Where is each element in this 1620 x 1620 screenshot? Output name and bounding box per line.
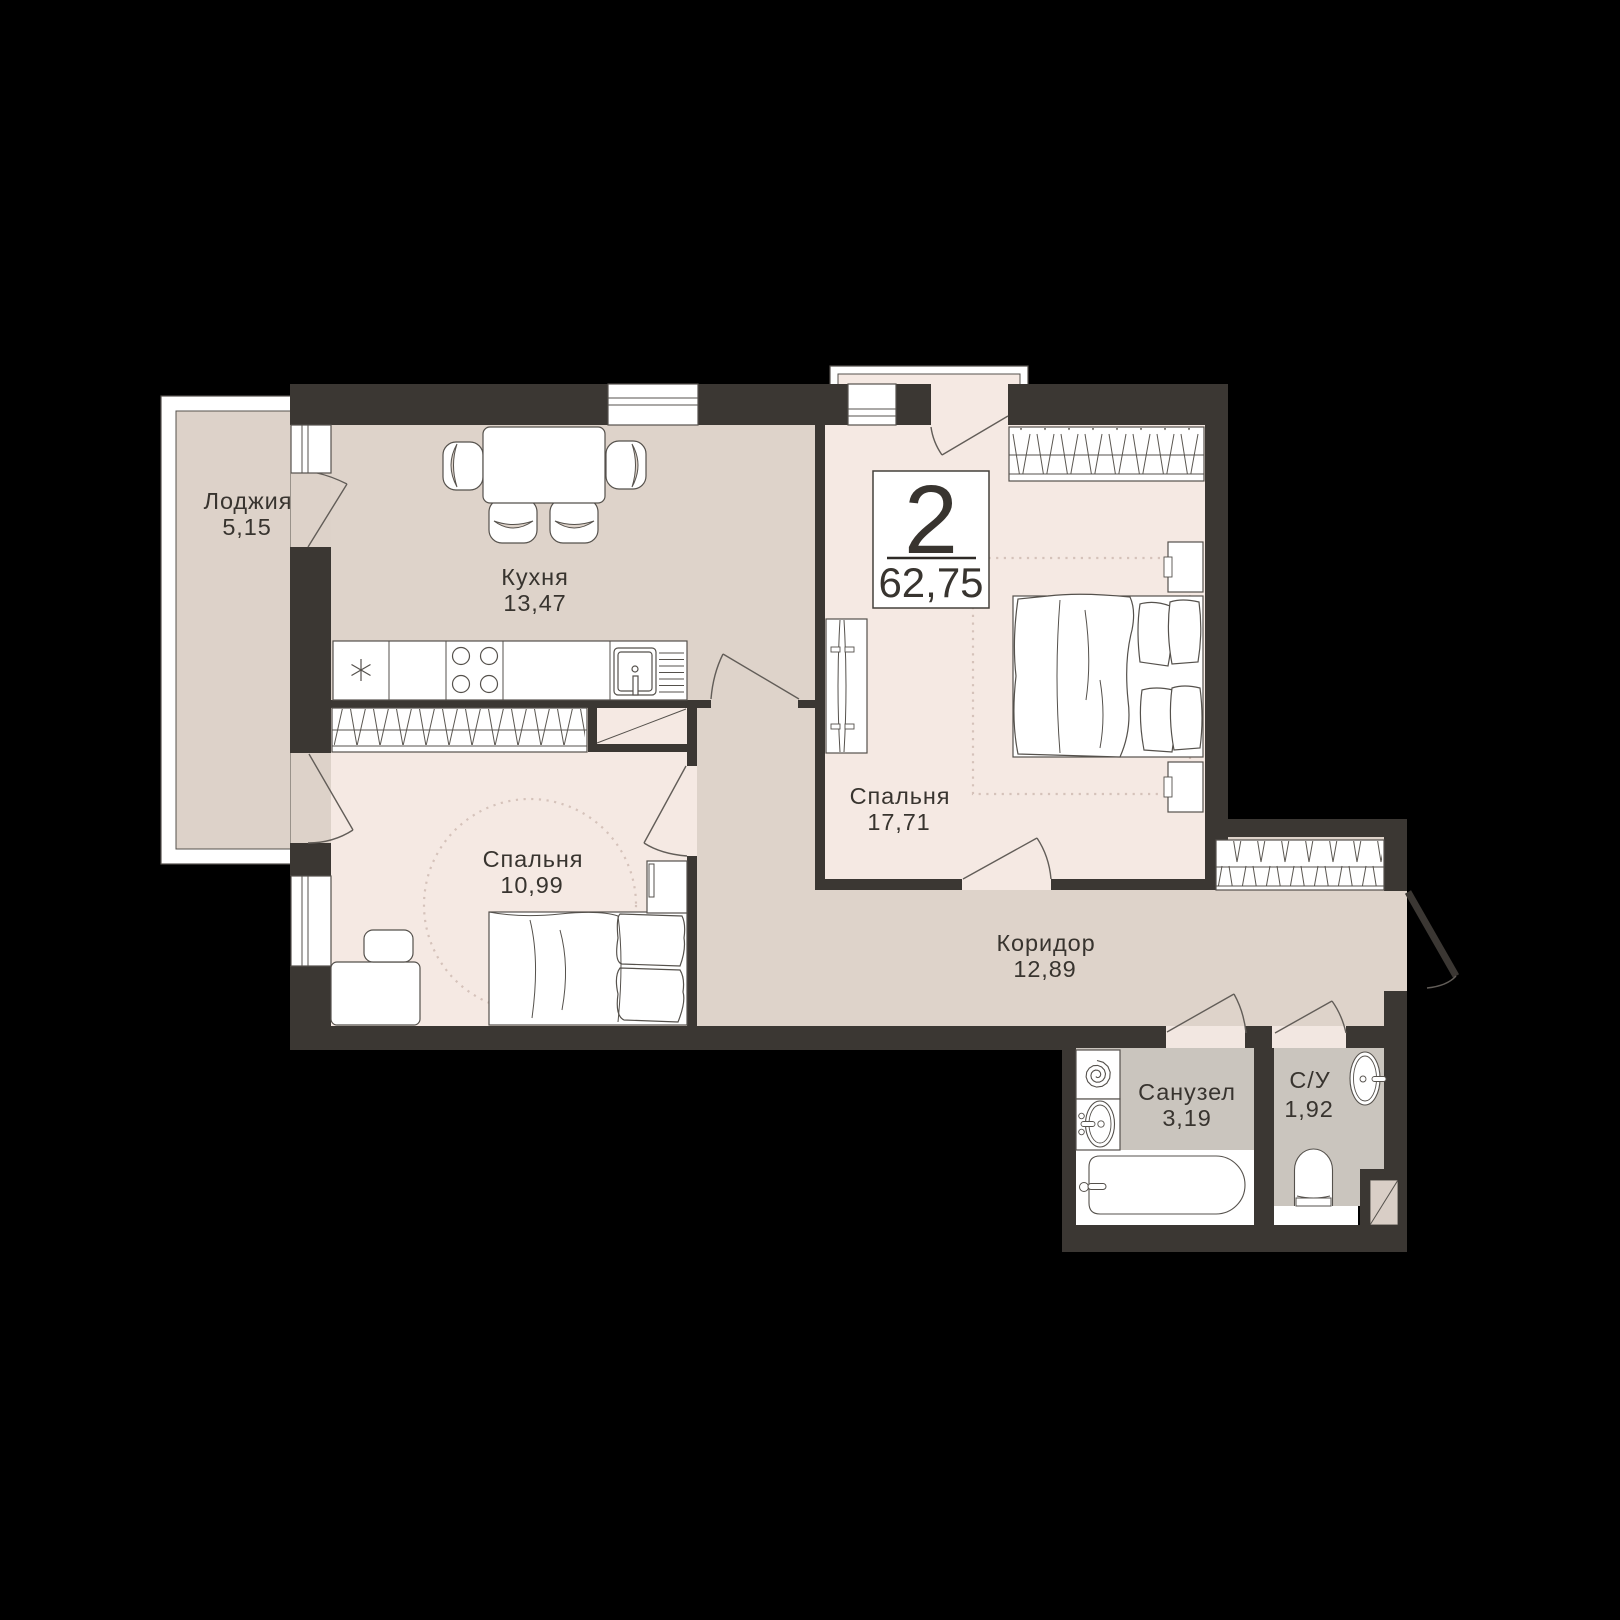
svg-text:62,75: 62,75 <box>878 559 983 606</box>
svg-text:Спальня: Спальня <box>850 783 951 809</box>
svg-text:1,92: 1,92 <box>1284 1096 1333 1122</box>
svg-text:Лоджия: Лоджия <box>204 488 293 514</box>
svg-text:12,89: 12,89 <box>1013 956 1076 982</box>
svg-text:Коридор: Коридор <box>996 930 1095 956</box>
svg-text:Кухня: Кухня <box>501 564 568 590</box>
svg-text:13,47: 13,47 <box>503 590 566 616</box>
svg-text:С/У: С/У <box>1289 1067 1330 1093</box>
svg-text:5,15: 5,15 <box>222 514 271 540</box>
svg-text:17,71: 17,71 <box>867 809 930 835</box>
svg-text:Санузел: Санузел <box>1138 1079 1236 1105</box>
svg-text:10,99: 10,99 <box>500 872 563 898</box>
svg-text:Спальня: Спальня <box>483 846 584 872</box>
svg-text:3,19: 3,19 <box>1162 1105 1211 1131</box>
